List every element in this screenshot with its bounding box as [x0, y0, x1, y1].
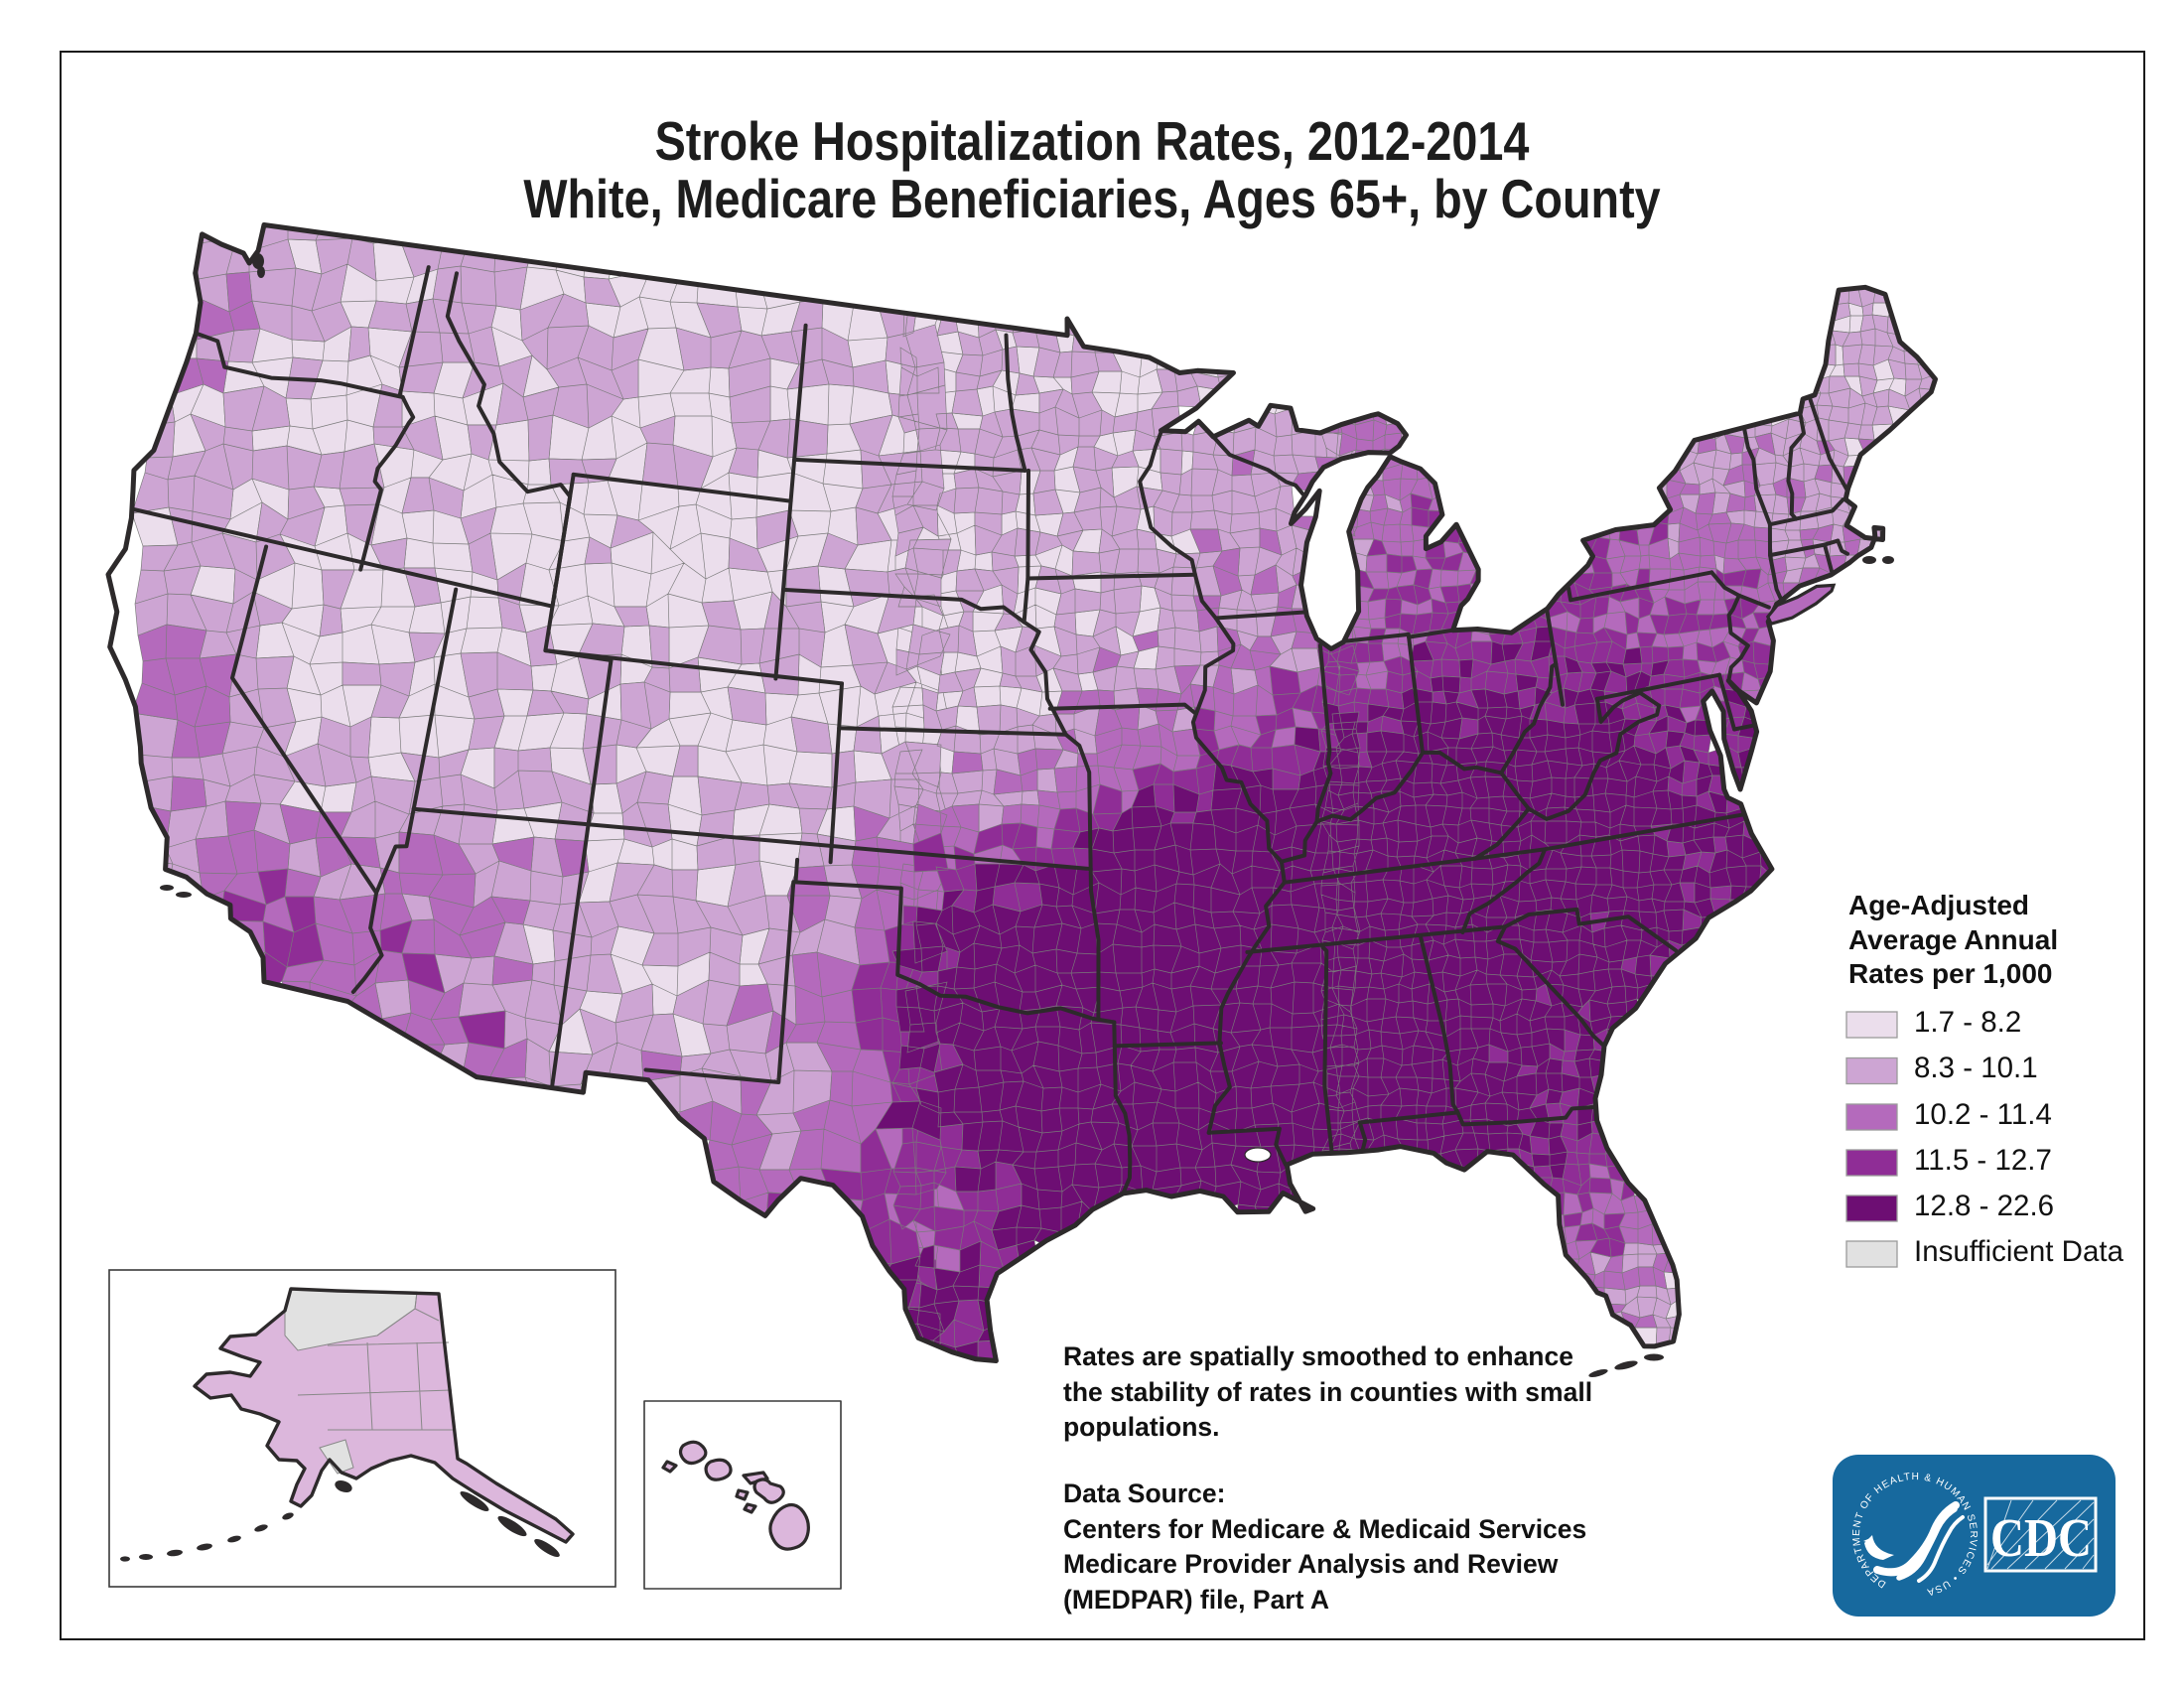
svg-text:CDC: CDC [1990, 1507, 2092, 1568]
